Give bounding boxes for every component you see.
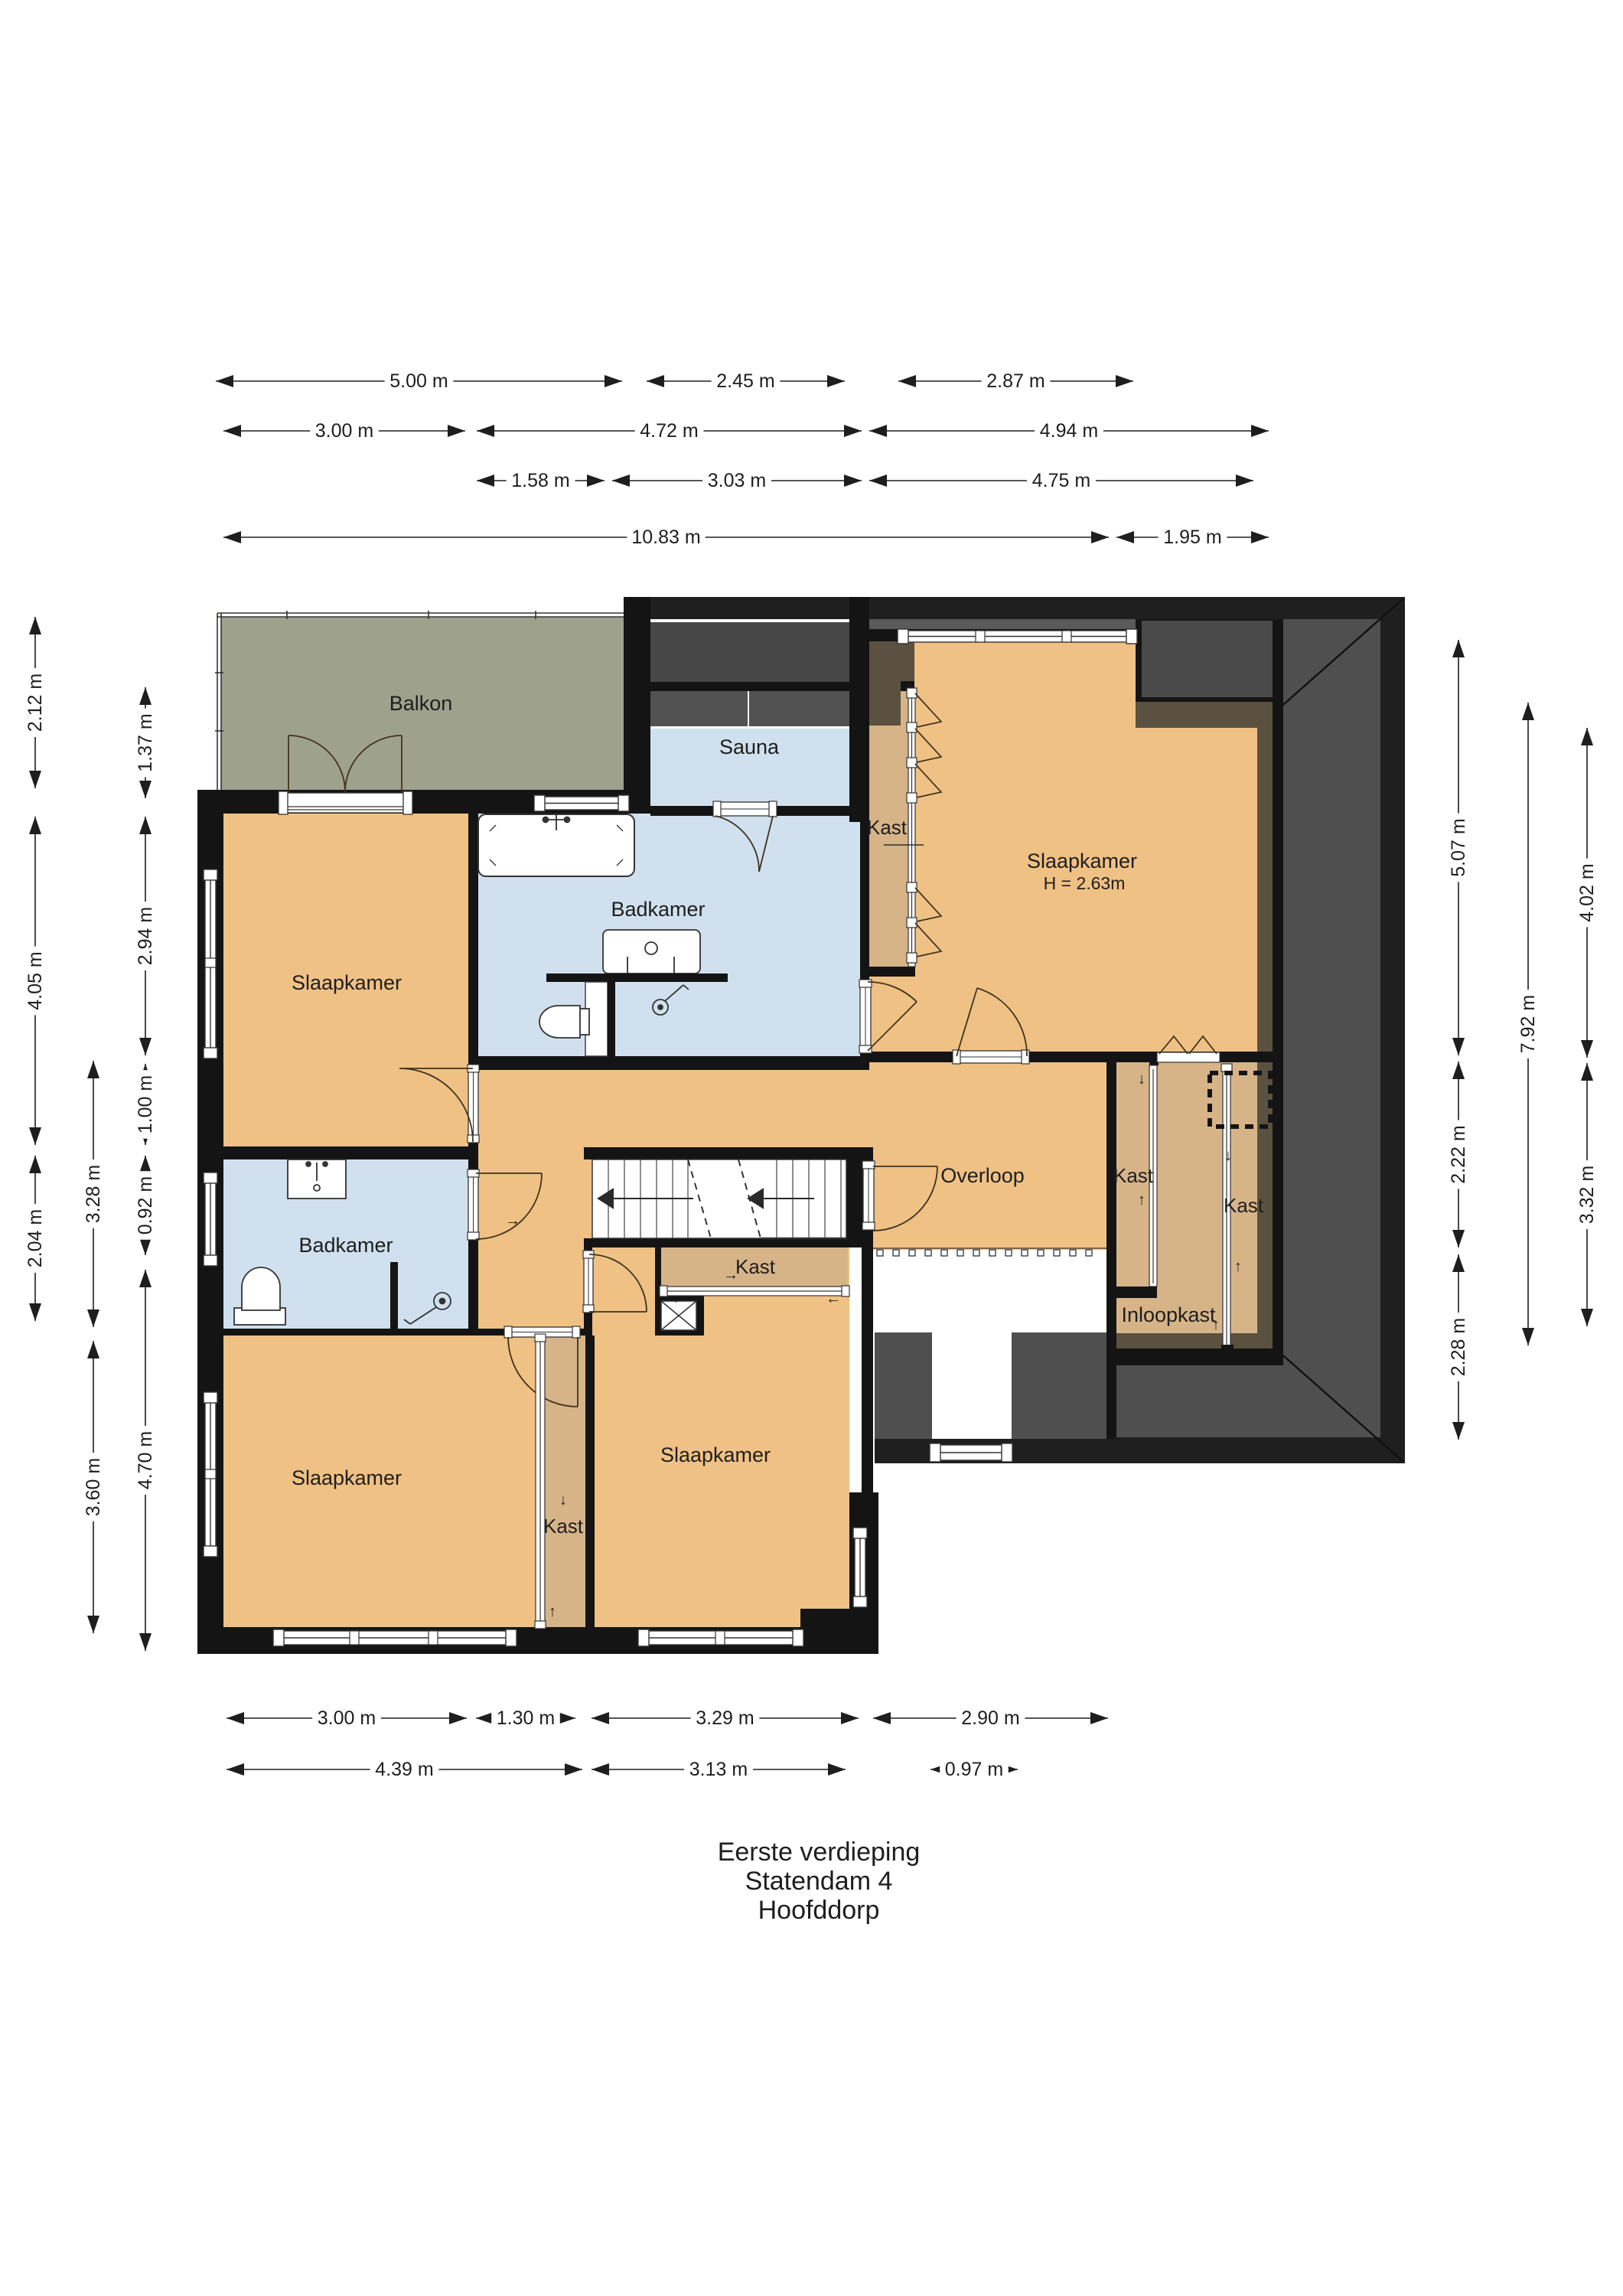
svg-text:3.28 m: 3.28 m — [83, 1165, 104, 1223]
svg-text:Badkamer: Badkamer — [298, 1234, 393, 1257]
svg-text:↑: ↑ — [1138, 1192, 1146, 1208]
svg-text:3.60 m: 3.60 m — [83, 1458, 104, 1516]
svg-text:2.04 m: 2.04 m — [24, 1209, 46, 1267]
svg-text:10.83 m: 10.83 m — [631, 527, 700, 548]
svg-text:3.32 m: 3.32 m — [1576, 1166, 1598, 1224]
svg-text:1.58 m: 1.58 m — [511, 470, 569, 491]
svg-text:4.39 m: 4.39 m — [375, 1759, 433, 1780]
svg-text:Balkon: Balkon — [389, 692, 453, 715]
svg-text:←: ← — [826, 1290, 841, 1307]
svg-text:2.94 m: 2.94 m — [135, 907, 156, 965]
svg-text:3.13 m: 3.13 m — [689, 1759, 748, 1780]
svg-text:2.12 m: 2.12 m — [24, 673, 46, 732]
svg-text:Slaapkamer: Slaapkamer — [660, 1443, 771, 1466]
svg-text:2.22 m: 2.22 m — [1448, 1125, 1469, 1183]
svg-text:Inloopkast: Inloopkast — [1121, 1303, 1216, 1326]
svg-text:2.87 m: 2.87 m — [986, 370, 1045, 392]
svg-text:4.72 m: 4.72 m — [640, 420, 698, 442]
svg-text:Kast: Kast — [867, 816, 908, 839]
svg-text:4.70 m: 4.70 m — [135, 1431, 156, 1489]
svg-text:→: → — [505, 1212, 520, 1229]
svg-text:4.05 m: 4.05 m — [24, 951, 46, 1009]
svg-text:Kast: Kast — [1224, 1194, 1264, 1217]
svg-text:Slaapkamer: Slaapkamer — [292, 971, 402, 994]
svg-text:5.07 m: 5.07 m — [1448, 818, 1469, 876]
svg-text:→: → — [723, 1267, 738, 1283]
svg-text:Kast: Kast — [1113, 1164, 1154, 1187]
svg-text:2.28 m: 2.28 m — [1448, 1318, 1469, 1376]
svg-text:↑: ↑ — [1212, 1316, 1220, 1333]
svg-text:Statendam 4: Statendam 4 — [745, 1867, 893, 1896]
svg-text:7.92 m: 7.92 m — [1517, 995, 1539, 1053]
svg-text:Slaapkamer: Slaapkamer — [292, 1466, 402, 1489]
svg-text:Kast: Kast — [543, 1515, 584, 1538]
svg-text:0.92 m: 0.92 m — [135, 1176, 156, 1234]
svg-text:1.30 m: 1.30 m — [497, 1707, 555, 1729]
svg-text:4.02 m: 4.02 m — [1576, 863, 1598, 921]
svg-text:3.29 m: 3.29 m — [696, 1707, 754, 1729]
svg-text:2.45 m: 2.45 m — [716, 370, 774, 392]
svg-text:↓: ↓ — [559, 1492, 567, 1508]
svg-text:Kast: Kast — [735, 1255, 776, 1278]
svg-text:1.95 m: 1.95 m — [1163, 527, 1221, 548]
svg-text:Slaapkamer: Slaapkamer — [1027, 850, 1137, 872]
svg-text:↑: ↑ — [1234, 1258, 1242, 1275]
svg-text:3.00 m: 3.00 m — [315, 420, 373, 442]
svg-text:↓: ↓ — [1138, 1071, 1146, 1088]
svg-text:Hoofddorp: Hoofddorp — [758, 1896, 880, 1925]
svg-text:↓: ↓ — [1224, 1147, 1232, 1164]
svg-text:2.90 m: 2.90 m — [961, 1707, 1019, 1729]
svg-text:0.97 m: 0.97 m — [945, 1759, 1003, 1780]
svg-text:5.00 m: 5.00 m — [389, 370, 448, 392]
svg-text:3.03 m: 3.03 m — [708, 470, 766, 491]
svg-text:1.37 m: 1.37 m — [135, 713, 156, 771]
svg-text:↑: ↑ — [549, 1603, 556, 1620]
svg-text:Badkamer: Badkamer — [611, 898, 705, 921]
svg-text:Overloop: Overloop — [940, 1164, 1025, 1187]
svg-text:1.00 m: 1.00 m — [135, 1075, 156, 1133]
svg-text:4.94 m: 4.94 m — [1040, 420, 1098, 442]
svg-text:→: → — [666, 1290, 681, 1307]
svg-text:Eerste verdieping: Eerste verdieping — [718, 1838, 921, 1867]
svg-text:3.00 m: 3.00 m — [318, 1707, 376, 1729]
svg-text:4.75 m: 4.75 m — [1032, 470, 1090, 491]
svg-text:H = 2.63m: H = 2.63m — [1044, 873, 1126, 893]
svg-text:Sauna: Sauna — [719, 735, 780, 758]
